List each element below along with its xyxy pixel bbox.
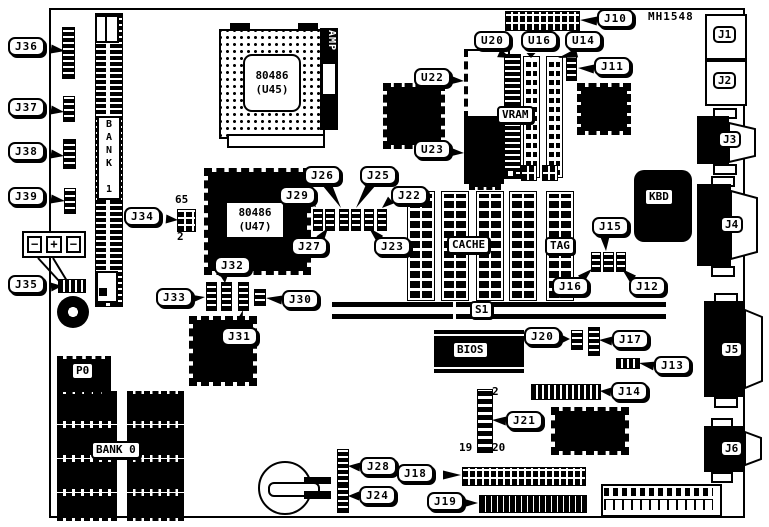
callout-j33: J33 (156, 288, 193, 307)
callout-j11: J11 (594, 57, 631, 76)
callout-u23: U23 (414, 140, 451, 159)
callout-j20: J20 (524, 327, 561, 346)
callout-j26: J26 (304, 166, 341, 185)
callout-layer: J36J37J38J39J35J34J10J11U20U16U14U22U23J… (0, 0, 769, 527)
callout-j38: J38 (8, 142, 45, 161)
callout-j30: J30 (282, 290, 319, 309)
callout-j19: J19 (427, 492, 464, 511)
callout-j34: J34 (124, 207, 161, 226)
callout-j29: J29 (279, 186, 316, 205)
callout-j27: J27 (291, 237, 328, 256)
callout-j28: J28 (360, 457, 397, 476)
callout-u14: U14 (565, 31, 602, 50)
motherboard-diagram: BANK 1 − + − 80486 (U45) AMP MH1548 VRAM… (0, 0, 769, 527)
callout-j36: J36 (8, 37, 45, 56)
callout-j12: J12 (629, 277, 666, 296)
callout-j10: J10 (597, 9, 634, 28)
callout-u20: U20 (474, 31, 511, 50)
callout-j16: J16 (552, 277, 589, 296)
callout-j13: J13 (654, 356, 691, 375)
callout-j24: J24 (359, 486, 396, 505)
callout-j32: J32 (214, 256, 251, 275)
callout-u22: U22 (414, 68, 451, 87)
callout-j37: J37 (8, 98, 45, 117)
callout-j35: J35 (8, 275, 45, 294)
callout-u16: U16 (521, 31, 558, 50)
callout-j22: J22 (391, 186, 428, 205)
callout-j31: J31 (221, 327, 258, 346)
callout-j23: J23 (374, 237, 411, 256)
callout-j14: J14 (611, 382, 648, 401)
callout-j15: J15 (592, 217, 629, 236)
callout-j25: J25 (360, 166, 397, 185)
callout-j18: J18 (397, 464, 434, 483)
callout-j17: J17 (612, 330, 649, 349)
callout-j21: J21 (506, 411, 543, 430)
callout-j39: J39 (8, 187, 45, 206)
